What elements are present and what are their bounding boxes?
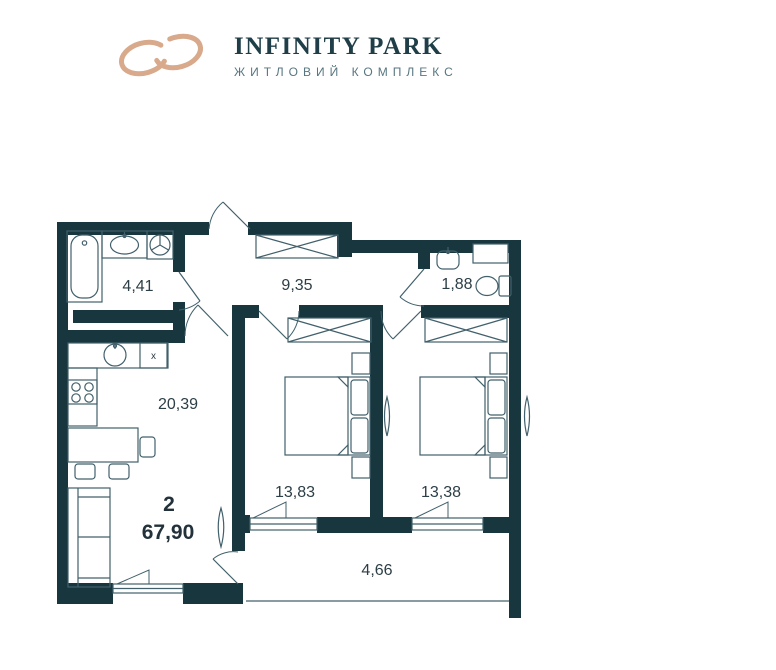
room-label-hallway: 9,35 <box>281 277 312 294</box>
bedroom2-door <box>381 311 421 339</box>
bathroom-sink <box>102 231 147 258</box>
stove <box>68 380 97 404</box>
apartment-summary: 2 67,90 <box>142 493 195 544</box>
room-label-balcony: 4,66 <box>361 562 392 579</box>
bedroom2-bed <box>420 377 507 455</box>
floor-plan: x <box>0 0 776 670</box>
kitchen-unit-mark: x <box>151 351 156 362</box>
bedroom1-bed <box>285 377 370 455</box>
living-room-window <box>113 570 183 593</box>
room-label-bathroom: 4,41 <box>122 278 153 295</box>
apartment-rooms-count: 2 <box>163 493 175 516</box>
apartment-total-area: 67,90 <box>142 521 195 544</box>
wc-door <box>400 269 424 306</box>
bedroom2-window <box>412 502 483 530</box>
room-label-bedroom1: 13,83 <box>275 484 315 501</box>
bedroom1-window <box>250 502 317 530</box>
sofa <box>68 488 110 587</box>
hallway-wardrobe <box>256 235 338 258</box>
washing-machine <box>147 231 173 259</box>
kitchen-unit-box: x <box>140 343 167 368</box>
kitchen-sink <box>104 343 126 366</box>
duct-shaft <box>473 244 508 263</box>
entrance-door <box>209 202 250 229</box>
kitchen-door <box>185 305 228 336</box>
bedroom1-door <box>259 311 299 339</box>
bedroom1-wardrobe <box>288 318 371 342</box>
room-label-bedroom2: 13,38 <box>421 484 461 501</box>
bathtub <box>67 231 102 302</box>
balcony-door <box>213 552 238 584</box>
room-label-kitchen-living: 20,39 <box>158 396 198 413</box>
room-label-wc: 1,88 <box>441 276 472 293</box>
bedroom2-wardrobe <box>425 318 507 342</box>
flat-plan-sheet: INFINITY PARK ЖИТЛОВИЙ КОМПЛЕКС <box>0 0 776 670</box>
dining-table <box>68 428 155 479</box>
toilet <box>476 276 511 296</box>
